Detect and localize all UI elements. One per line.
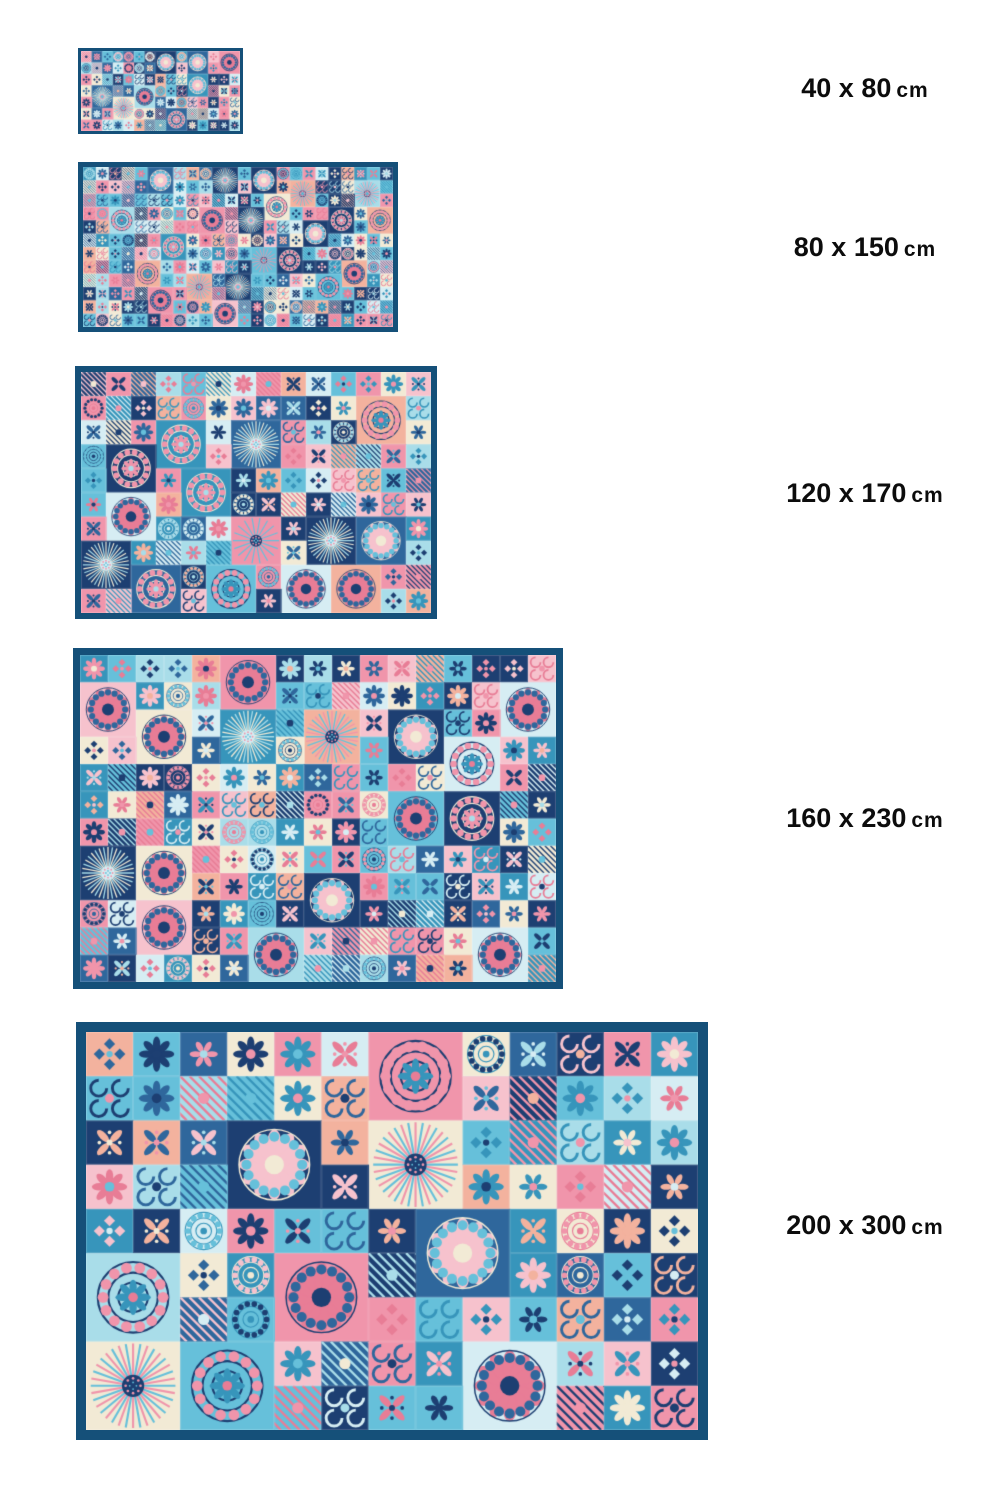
rug-swatch-200x300 — [76, 1022, 708, 1440]
rug-swatch-160x230 — [73, 648, 563, 989]
size-unit: cm — [911, 809, 943, 832]
rug-swatch-40x80 — [78, 48, 243, 134]
size-value: 120 x 170 — [786, 478, 906, 508]
rug-pattern-canvas — [81, 372, 431, 613]
rug-pattern-canvas — [83, 167, 393, 327]
size-value: 80 x 150 — [794, 232, 899, 262]
size-label-40x80: 40 x 80cm — [755, 74, 975, 105]
size-value: 40 x 80 — [801, 73, 891, 103]
size-label-160x230: 160 x 230cm — [755, 804, 975, 835]
rug-pattern-canvas — [80, 655, 556, 982]
rug-pattern-canvas — [81, 51, 240, 131]
size-unit: cm — [911, 1216, 943, 1239]
rug-pattern-canvas — [86, 1032, 698, 1430]
size-label-120x170: 120 x 170cm — [755, 479, 975, 510]
size-unit: cm — [911, 484, 943, 507]
size-unit: cm — [904, 238, 936, 261]
size-unit: cm — [896, 79, 928, 102]
rug-swatch-80x150 — [78, 162, 398, 332]
rug-swatch-120x170 — [75, 366, 437, 619]
size-label-80x150: 80 x 150cm — [755, 233, 975, 264]
size-label-200x300: 200 x 300cm — [755, 1211, 975, 1242]
size-value: 160 x 230 — [786, 803, 906, 833]
size-value: 200 x 300 — [786, 1210, 906, 1240]
rug-size-comparison-image: 40 x 80cm 80 x 150cm 120 x 170cm 160 x 2… — [0, 0, 1000, 1505]
